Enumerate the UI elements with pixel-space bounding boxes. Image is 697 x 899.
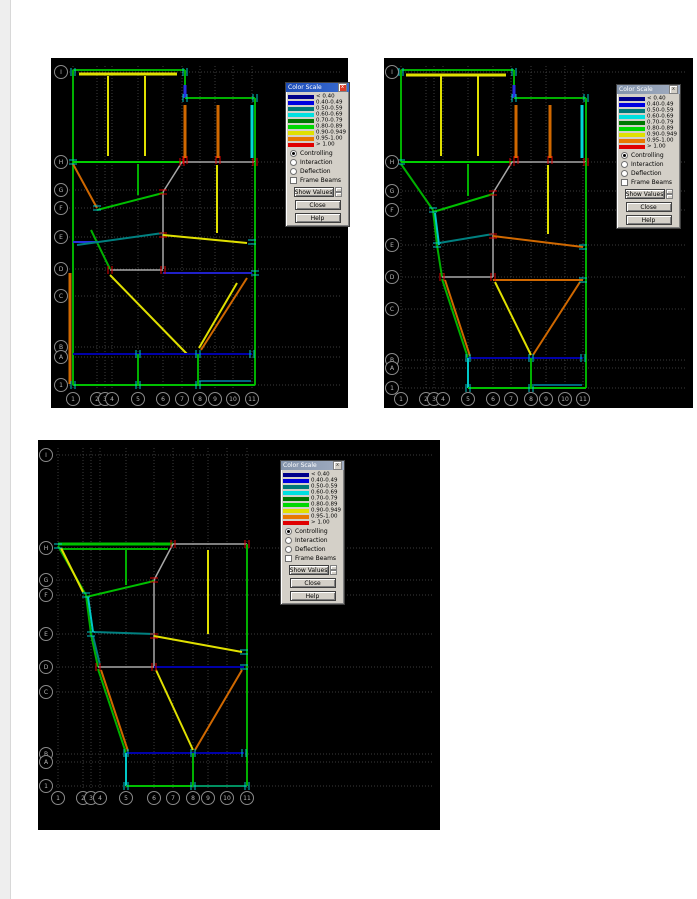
scale-range-label: > 1.00: [311, 520, 330, 526]
radio-label: Interaction: [295, 537, 328, 544]
frame-beams-checkbox[interactable]: [285, 555, 292, 562]
svg-text:11: 11: [248, 396, 256, 403]
radio-label: Interaction: [300, 159, 333, 166]
svg-text:9: 9: [544, 396, 548, 403]
radio-icon[interactable]: [285, 546, 292, 553]
svg-text:5: 5: [466, 396, 470, 403]
scale-range-label: > 1.00: [647, 144, 666, 150]
scale-swatch: [288, 113, 314, 117]
scale-swatch: [283, 473, 309, 477]
radio-option-interaction[interactable]: Interaction: [288, 158, 347, 166]
scale-swatch: [288, 143, 314, 147]
row-grid-bubble-I: I: [55, 66, 68, 79]
svg-text:11: 11: [579, 396, 587, 403]
scale-swatch: [619, 145, 645, 149]
radio-icon[interactable]: [285, 528, 292, 535]
show-values-button[interactable]: Show Values: [289, 565, 329, 575]
scale-swatch: [283, 485, 309, 489]
show-values-button[interactable]: Show Values: [625, 189, 665, 199]
row-grid-bubble-G: G: [40, 574, 53, 587]
radio-icon[interactable]: [285, 537, 292, 544]
scale-row: > 1.00: [283, 520, 342, 526]
col-grid-bubble-9: 9: [209, 393, 222, 406]
row-grid-bubble-F: F: [386, 204, 399, 217]
col-grid-bubble-7: 7: [167, 792, 180, 805]
radio-icon[interactable]: [290, 150, 297, 157]
radio-label: Deflection: [300, 168, 331, 175]
row-grid-bubble-F: F: [40, 589, 53, 602]
radio-option-interaction[interactable]: Interaction: [283, 536, 342, 544]
scale-swatch: [288, 125, 314, 129]
svg-text:1: 1: [59, 382, 63, 389]
svg-text:H: H: [59, 159, 64, 166]
row-grid-bubble-G: G: [55, 184, 68, 197]
col-grid-bubble-5: 5: [462, 393, 475, 406]
svg-text:5: 5: [124, 795, 128, 802]
scale-swatch: [619, 133, 645, 137]
svg-text:6: 6: [491, 396, 495, 403]
row-grid-bubble-I: I: [40, 449, 53, 462]
color-scale-dialog: Color Scale x < 0.400.40-0.490.50-0.590.…: [616, 84, 681, 229]
close-button[interactable]: Close: [626, 202, 672, 212]
svg-text:B: B: [59, 344, 63, 351]
svg-text:8: 8: [198, 396, 202, 403]
svg-text:I: I: [60, 69, 62, 76]
svg-text:7: 7: [171, 795, 175, 802]
frame-beams-row[interactable]: Frame Beams: [288, 176, 347, 184]
color-scale-legend: < 0.400.40-0.490.50-0.590.60-0.690.70-0.…: [619, 96, 678, 150]
dialog-titlebar[interactable]: Color Scale x: [286, 83, 349, 92]
radio-icon[interactable]: [290, 159, 297, 166]
svg-text:D: D: [59, 266, 64, 273]
structural-plan-drawing: IHGFEDCBA11234567891011: [38, 440, 440, 830]
col-grid-bubble-5: 5: [132, 393, 145, 406]
frame-beams-label: Frame Beams: [295, 555, 336, 562]
scale-swatch: [288, 137, 314, 141]
dialog-title: Color Scale: [288, 83, 322, 92]
spinner-control[interactable]: [666, 189, 673, 199]
radio-option-deflection[interactable]: Deflection: [283, 545, 342, 553]
color-scale-legend: < 0.400.40-0.490.50-0.590.60-0.690.70-0.…: [288, 94, 347, 148]
show-values-button[interactable]: Show Values: [294, 187, 334, 197]
help-button[interactable]: Help: [626, 215, 672, 225]
row-grid-bubble-1: 1: [55, 379, 68, 392]
row-grid-bubble-D: D: [386, 271, 399, 284]
radio-option-deflection[interactable]: Deflection: [619, 169, 678, 177]
svg-text:4: 4: [441, 396, 445, 403]
svg-text:4: 4: [98, 795, 102, 802]
scale-swatch: [619, 115, 645, 119]
scale-swatch: [283, 509, 309, 513]
svg-text:G: G: [390, 188, 395, 195]
row-grid-bubble-C: C: [40, 686, 53, 699]
col-grid-bubble-5: 5: [120, 792, 133, 805]
svg-text:6: 6: [161, 396, 165, 403]
col-grid-bubble-8: 8: [525, 393, 538, 406]
radio-option-interaction[interactable]: Interaction: [619, 160, 678, 168]
help-button[interactable]: Help: [290, 591, 336, 601]
scale-swatch: [288, 101, 314, 105]
scale-swatch: [619, 103, 645, 107]
scale-swatch: [619, 127, 645, 131]
row-grid-bubble-G: G: [386, 185, 399, 198]
row-grid-bubble-F: F: [55, 202, 68, 215]
svg-text:9: 9: [213, 396, 217, 403]
radio-label: Deflection: [631, 170, 662, 177]
scale-swatch: [283, 491, 309, 495]
col-grid-bubble-11: 11: [246, 393, 259, 406]
svg-text:10: 10: [223, 795, 231, 802]
col-grid-bubble-4: 4: [437, 393, 450, 406]
row-grid-bubble-E: E: [40, 628, 53, 641]
svg-text:F: F: [44, 592, 48, 599]
scale-swatch: [288, 95, 314, 99]
radio-label: Controlling: [300, 150, 333, 157]
svg-text:8: 8: [529, 396, 533, 403]
plan-view-panel-1: IHGFEDCBA11234567891011 Color Scale x < …: [51, 58, 348, 408]
col-grid-bubble-7: 7: [505, 393, 518, 406]
scale-mode-radios: ControllingInteractionDeflection: [283, 527, 342, 553]
scale-mode-radios: ControllingInteractionDeflection: [288, 149, 347, 175]
svg-text:11: 11: [243, 795, 251, 802]
scale-range-label: > 1.00: [316, 142, 335, 148]
svg-text:4: 4: [110, 396, 114, 403]
col-grid-bubble-9: 9: [540, 393, 553, 406]
row-grid-bubble-D: D: [55, 263, 68, 276]
row-grid-bubble-C: C: [55, 290, 68, 303]
svg-text:E: E: [390, 242, 394, 249]
svg-text:1: 1: [390, 385, 394, 392]
close-button[interactable]: Close: [295, 200, 341, 210]
close-icon[interactable]: x: [669, 85, 678, 94]
scale-swatch: [283, 497, 309, 501]
radio-icon[interactable]: [621, 170, 628, 177]
svg-text:I: I: [391, 69, 393, 76]
svg-text:1: 1: [56, 795, 60, 802]
radio-icon[interactable]: [290, 168, 297, 175]
svg-text:C: C: [390, 306, 394, 313]
radio-label: Controlling: [295, 528, 328, 535]
svg-text:6: 6: [152, 795, 156, 802]
svg-text:10: 10: [229, 396, 237, 403]
scale-swatch: [283, 503, 309, 507]
col-grid-bubble-4: 4: [94, 792, 107, 805]
svg-text:F: F: [390, 207, 394, 214]
svg-text:D: D: [44, 664, 49, 671]
page: IHGFEDCBA11234567891011 Color Scale x < …: [0, 0, 697, 899]
radio-label: Deflection: [295, 546, 326, 553]
row-grid-bubble-1: 1: [386, 382, 399, 395]
col-grid-bubble-10: 10: [559, 393, 572, 406]
color-scale-dialog: Color Scale x < 0.400.40-0.490.50-0.590.…: [280, 460, 345, 605]
row-grid-bubble-A: A: [55, 351, 68, 364]
svg-text:F: F: [59, 205, 63, 212]
col-grid-bubble-6: 6: [148, 792, 161, 805]
frame-beams-checkbox[interactable]: [290, 177, 297, 184]
row-grid-bubble-H: H: [55, 156, 68, 169]
scale-swatch: [288, 107, 314, 111]
col-grid-bubble-9: 9: [202, 792, 215, 805]
help-button[interactable]: Help: [295, 213, 341, 223]
scale-row: > 1.00: [288, 142, 347, 148]
close-icon[interactable]: x: [338, 83, 347, 92]
frame-beams-row[interactable]: Frame Beams: [619, 178, 678, 186]
col-grid-bubble-8: 8: [194, 393, 207, 406]
row-grid-bubble-C: C: [386, 303, 399, 316]
radio-icon[interactable]: [621, 152, 628, 159]
radio-option-deflection[interactable]: Deflection: [288, 167, 347, 175]
scale-swatch: [619, 97, 645, 101]
row-grid-bubble-A: A: [40, 756, 53, 769]
close-button[interactable]: Close: [290, 578, 336, 588]
svg-text:D: D: [390, 274, 395, 281]
col-grid-bubble-10: 10: [227, 393, 240, 406]
svg-text:E: E: [59, 234, 63, 241]
svg-text:9: 9: [206, 795, 210, 802]
radio-option-controlling[interactable]: Controlling: [283, 527, 342, 535]
radio-icon[interactable]: [621, 161, 628, 168]
col-grid-bubble-1: 1: [67, 393, 80, 406]
frame-beams-label: Frame Beams: [300, 177, 341, 184]
row-grid-bubble-1: 1: [40, 780, 53, 793]
scale-swatch: [288, 119, 314, 123]
close-icon[interactable]: x: [333, 461, 342, 470]
color-scale-dialog: Color Scale x < 0.400.40-0.490.50-0.590.…: [285, 82, 350, 227]
scale-swatch: [288, 131, 314, 135]
svg-text:8: 8: [191, 795, 195, 802]
svg-text:7: 7: [180, 396, 184, 403]
col-grid-bubble-4: 4: [106, 393, 119, 406]
frame-beams-row[interactable]: Frame Beams: [283, 554, 342, 562]
left-margin-strip: [0, 0, 11, 899]
scale-row: > 1.00: [619, 144, 678, 150]
scale-swatch: [619, 121, 645, 125]
dialog-title: Color Scale: [619, 85, 653, 94]
svg-text:1: 1: [399, 396, 403, 403]
row-grid-bubble-I: I: [386, 66, 399, 79]
svg-text:H: H: [44, 545, 49, 552]
row-grid-bubble-E: E: [55, 231, 68, 244]
svg-text:G: G: [44, 577, 49, 584]
svg-text:G: G: [59, 187, 64, 194]
spinner-control[interactable]: [335, 187, 342, 197]
scale-swatch: [283, 515, 309, 519]
col-grid-bubble-11: 11: [577, 393, 590, 406]
svg-text:1: 1: [44, 783, 48, 790]
col-grid-bubble-11: 11: [241, 792, 254, 805]
svg-text:I: I: [45, 452, 47, 459]
col-grid-bubble-10: 10: [221, 792, 234, 805]
col-grid-bubble-1: 1: [52, 792, 65, 805]
radio-label: Controlling: [631, 152, 664, 159]
svg-text:3: 3: [432, 396, 436, 403]
scale-swatch: [619, 139, 645, 143]
radio-label: Interaction: [631, 161, 664, 168]
dialog-title: Color Scale: [283, 461, 317, 470]
col-grid-bubble-1: 1: [395, 393, 408, 406]
spinner-control[interactable]: [330, 565, 337, 575]
row-grid-bubble-H: H: [40, 542, 53, 555]
scale-swatch: [283, 479, 309, 483]
scale-swatch: [283, 521, 309, 525]
plan-view-panel-3: IHGFEDCBA11234567891011 Color Scale x < …: [38, 440, 440, 830]
dialog-titlebar[interactable]: Color Scale x: [281, 461, 344, 470]
col-grid-bubble-7: 7: [176, 393, 189, 406]
svg-text:5: 5: [136, 396, 140, 403]
frame-beams-label: Frame Beams: [631, 179, 672, 186]
frame-beams-checkbox[interactable]: [621, 179, 628, 186]
plan-view-panel-2: IHGFEDCBA11234567891011 Color Scale x < …: [384, 58, 693, 408]
radio-option-controlling[interactable]: Controlling: [619, 151, 678, 159]
scale-swatch: [619, 109, 645, 113]
row-grid-bubble-D: D: [40, 661, 53, 674]
svg-text:10: 10: [561, 396, 569, 403]
svg-text:7: 7: [509, 396, 513, 403]
dialog-titlebar[interactable]: Color Scale x: [617, 85, 680, 94]
svg-text:C: C: [44, 689, 48, 696]
radio-option-controlling[interactable]: Controlling: [288, 149, 347, 157]
col-grid-bubble-6: 6: [487, 393, 500, 406]
svg-text:1: 1: [71, 396, 75, 403]
col-grid-bubble-6: 6: [157, 393, 170, 406]
row-grid-bubble-E: E: [386, 239, 399, 252]
svg-text:3: 3: [89, 795, 93, 802]
row-grid-bubble-A: A: [386, 362, 399, 375]
scale-mode-radios: ControllingInteractionDeflection: [619, 151, 678, 177]
svg-text:C: C: [59, 293, 63, 300]
col-grid-bubble-8: 8: [187, 792, 200, 805]
color-scale-legend: < 0.400.40-0.490.50-0.590.60-0.690.70-0.…: [283, 472, 342, 526]
row-grid-bubble-H: H: [386, 156, 399, 169]
svg-text:H: H: [390, 159, 395, 166]
svg-text:E: E: [44, 631, 48, 638]
